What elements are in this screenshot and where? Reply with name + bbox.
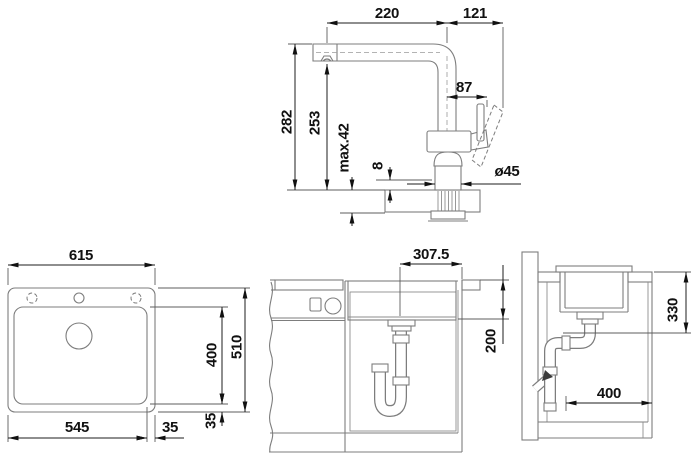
dim-label-bowl-depth: 400	[204, 343, 221, 367]
sink-top-view: 615 545 35 400 35 510	[8, 247, 250, 442]
dim-label-overall-depth: 510	[229, 335, 246, 359]
cabinet-side-view: 330 400	[522, 252, 691, 440]
break-line-left	[270, 282, 273, 452]
dim-label-handle-overhang: 121	[463, 5, 487, 22]
faucet-threaded-shank	[438, 191, 459, 211]
front-counter-left-hatch	[275, 280, 343, 290]
side-drain-flange	[577, 312, 603, 319]
appliance-knob	[325, 298, 341, 314]
dim-label-base-plate: 8	[370, 162, 387, 170]
technical-drawing: 220 121 87 282 253 max.42 8 ø45 615	[0, 0, 700, 464]
faucet-view: 220 121 87 282 253 max.42 8 ø45	[279, 5, 522, 226]
appliance-button	[310, 298, 321, 311]
side-pipe-end-cap	[544, 403, 556, 411]
side-sink-rim	[556, 266, 632, 272]
faucet-cartridge-body	[427, 131, 471, 152]
dim-label-drain-depth: 330	[665, 298, 682, 322]
side-counter-left-hatch	[538, 272, 560, 282]
dim-label-overall-width: 615	[69, 247, 93, 264]
dim-label-bowl-width: 545	[65, 419, 89, 436]
faucet-counter-hatch	[385, 190, 480, 212]
technical-drawing-page: 220 121 87 282 253 max.42 8 ø45 615	[0, 0, 700, 464]
cabinet-front-view: 307.5 200	[269, 246, 509, 452]
dim-label-spout-reach: 220	[375, 5, 399, 22]
faucet-base-cylinder	[435, 166, 461, 190]
dim-label-total-height: 282	[279, 110, 296, 134]
dim-label-max-counter: max.42	[336, 123, 353, 172]
side-pipe-coupling-h	[562, 336, 570, 350]
front-basin	[348, 281, 456, 320]
dim-label-handle-offset: 87	[456, 79, 472, 96]
side-basin	[560, 272, 628, 312]
dim-label-base-diameter: ø45	[495, 163, 520, 180]
front-drain-flange	[388, 320, 415, 326]
faucet-spout	[313, 44, 456, 131]
faucet-lever-vertical	[477, 104, 484, 141]
faucet-mounting-nut	[431, 211, 465, 219]
front-trap-cap	[372, 364, 388, 372]
front-trap-coupling-lower	[393, 377, 409, 385]
dim-label-drain-offset: 307.5	[413, 246, 449, 263]
side-counter-right-hatch	[628, 272, 652, 282]
faucet-neck-dome	[434, 152, 462, 166]
front-counter-right-hatch	[462, 280, 480, 290]
dim-label-interior-clearance: 400	[597, 385, 621, 402]
dim-label-right-offset: 35	[162, 419, 178, 436]
wall-section-hatch	[522, 252, 538, 440]
dim-label-spout-height: 253	[307, 111, 324, 135]
dim-label-drain-height: 200	[483, 329, 500, 353]
front-trap-coupling-upper	[393, 335, 409, 343]
dim-label-bottom-offset: 35	[203, 413, 220, 429]
